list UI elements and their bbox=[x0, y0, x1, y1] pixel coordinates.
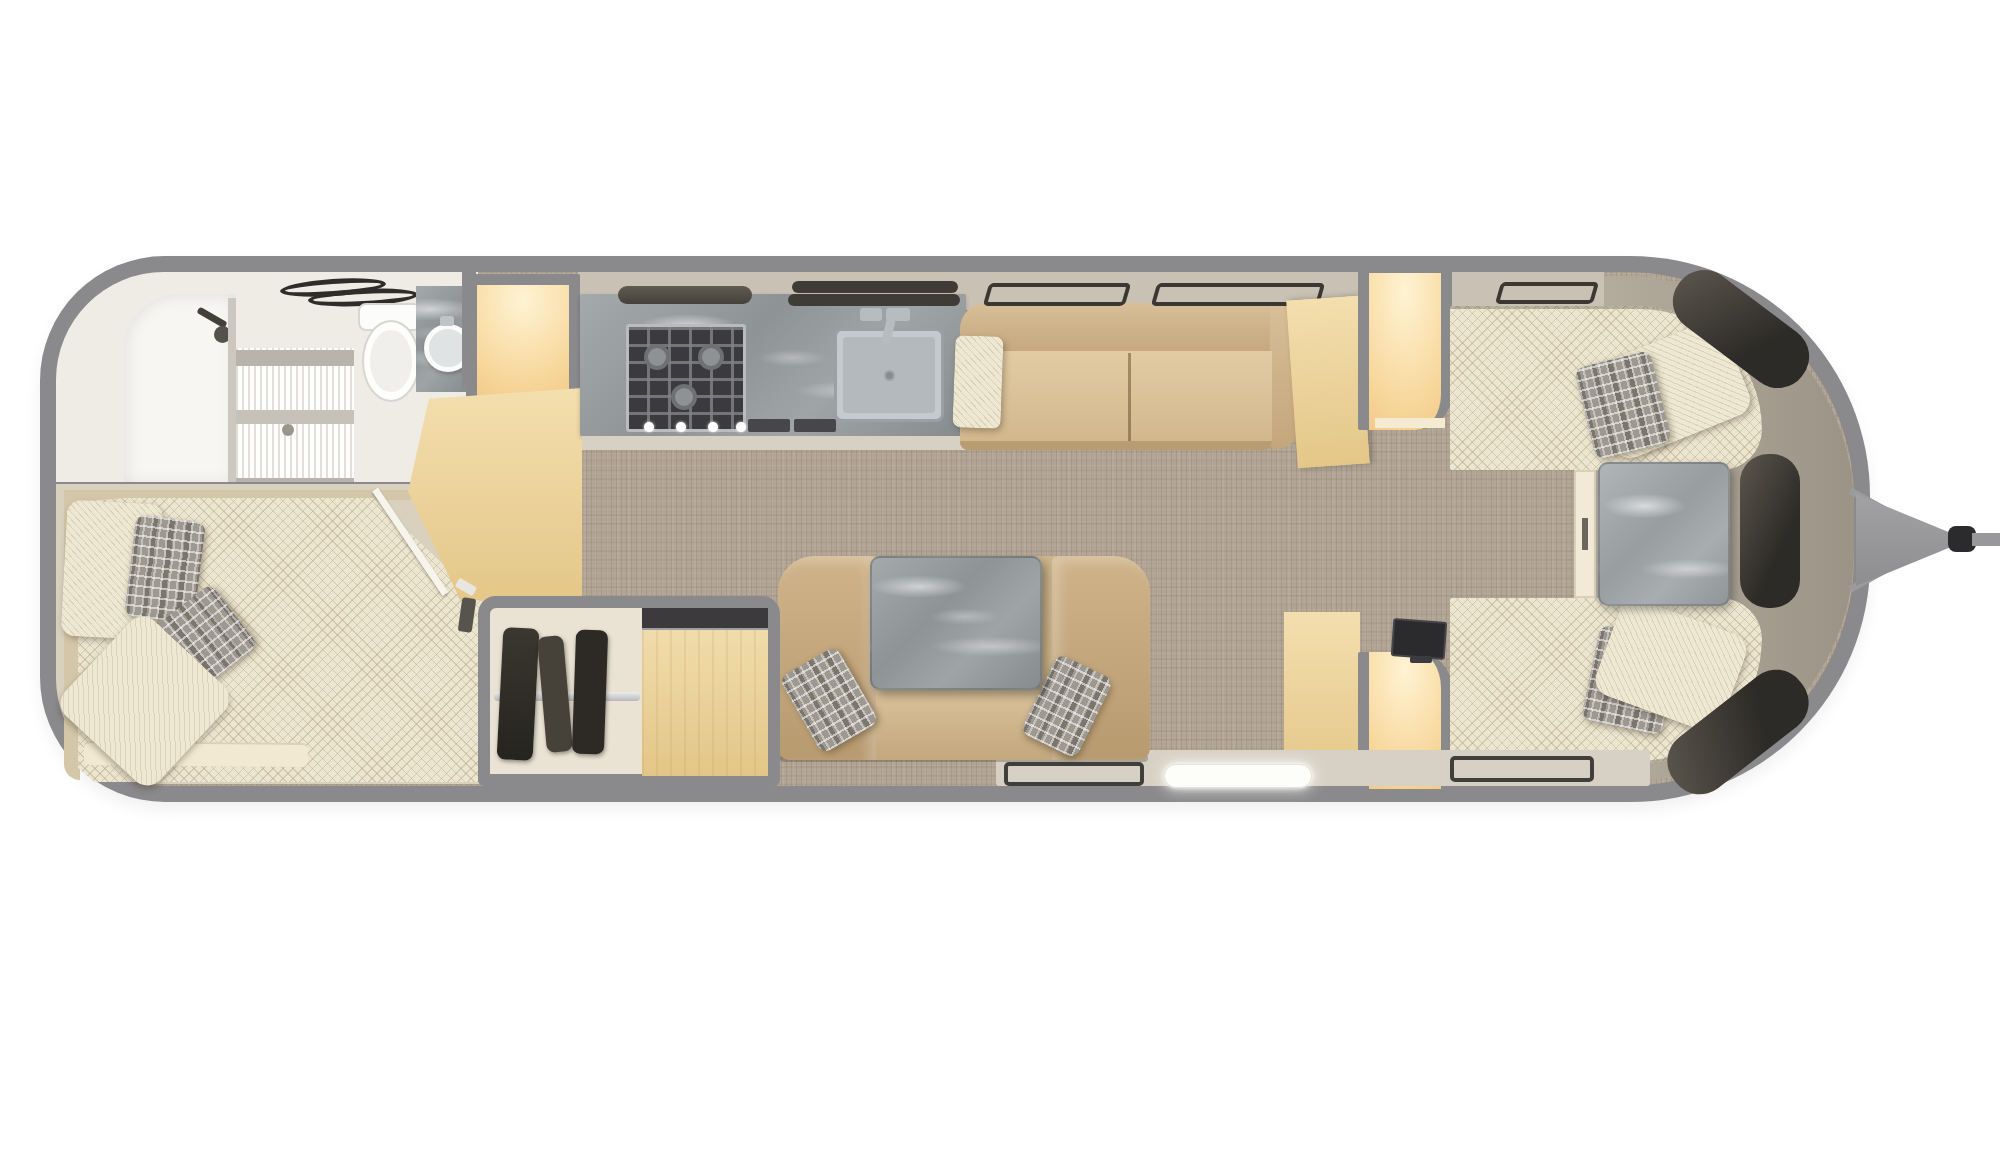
toilet-seat bbox=[370, 330, 412, 392]
kitchen-window-bar bbox=[792, 281, 958, 293]
wardrobe-niche bbox=[466, 274, 580, 398]
burner-icon bbox=[644, 344, 670, 370]
sink-drain-icon bbox=[884, 370, 895, 381]
floor-mat-outline bbox=[1004, 762, 1144, 786]
sofa-front-edge bbox=[960, 441, 1272, 450]
shower-door-top-rail bbox=[236, 350, 354, 366]
sofa-seat bbox=[960, 351, 1272, 445]
burner-icon bbox=[671, 384, 697, 410]
range-knob-icon bbox=[644, 422, 654, 432]
shower-glass-divider bbox=[228, 298, 236, 486]
hanging-garment bbox=[572, 629, 608, 754]
tv-stand bbox=[1410, 656, 1432, 663]
front-corner-table bbox=[1598, 462, 1730, 606]
front-wrap-window bbox=[1740, 454, 1800, 608]
range-hood bbox=[618, 286, 752, 304]
burner-icon bbox=[698, 344, 724, 370]
base-vent bbox=[748, 419, 790, 432]
faucet-handle-icon bbox=[860, 308, 882, 321]
base-vent bbox=[794, 419, 836, 432]
sofa-cushion-seam bbox=[1128, 353, 1131, 443]
floorplan-canvas bbox=[0, 0, 2000, 1152]
tv-screen bbox=[1391, 618, 1448, 660]
closet-counter-strip bbox=[642, 608, 768, 630]
range-knob-icon bbox=[676, 422, 686, 432]
shower-door-mid-rail bbox=[236, 410, 354, 424]
dinette-table bbox=[870, 556, 1042, 690]
sofa-backrest bbox=[960, 303, 1302, 355]
cooktop-range bbox=[626, 324, 746, 432]
table-latch-icon bbox=[1582, 518, 1588, 550]
hanging-garment bbox=[497, 627, 540, 761]
shower-drain-icon bbox=[282, 424, 294, 436]
hitch-tongue-bar bbox=[1972, 533, 2000, 546]
awning-window-outline bbox=[1495, 282, 1599, 304]
awning-window-outline bbox=[983, 283, 1132, 306]
kitchen-window-bar bbox=[788, 294, 960, 306]
sofa-accent-pillow bbox=[952, 335, 1003, 429]
niche-sill bbox=[1375, 418, 1445, 428]
storage-niche-top bbox=[1358, 262, 1452, 430]
kitchen-floor-strip bbox=[582, 436, 966, 450]
closet-cabinet-top bbox=[642, 630, 768, 776]
table-ledge bbox=[1574, 470, 1596, 598]
range-knob-icon bbox=[736, 422, 746, 432]
range-knob-icon bbox=[708, 422, 718, 432]
entry-step-led bbox=[1164, 764, 1312, 788]
floor-mat-outline bbox=[1450, 756, 1594, 782]
bathroom-faucet-icon bbox=[440, 316, 454, 326]
